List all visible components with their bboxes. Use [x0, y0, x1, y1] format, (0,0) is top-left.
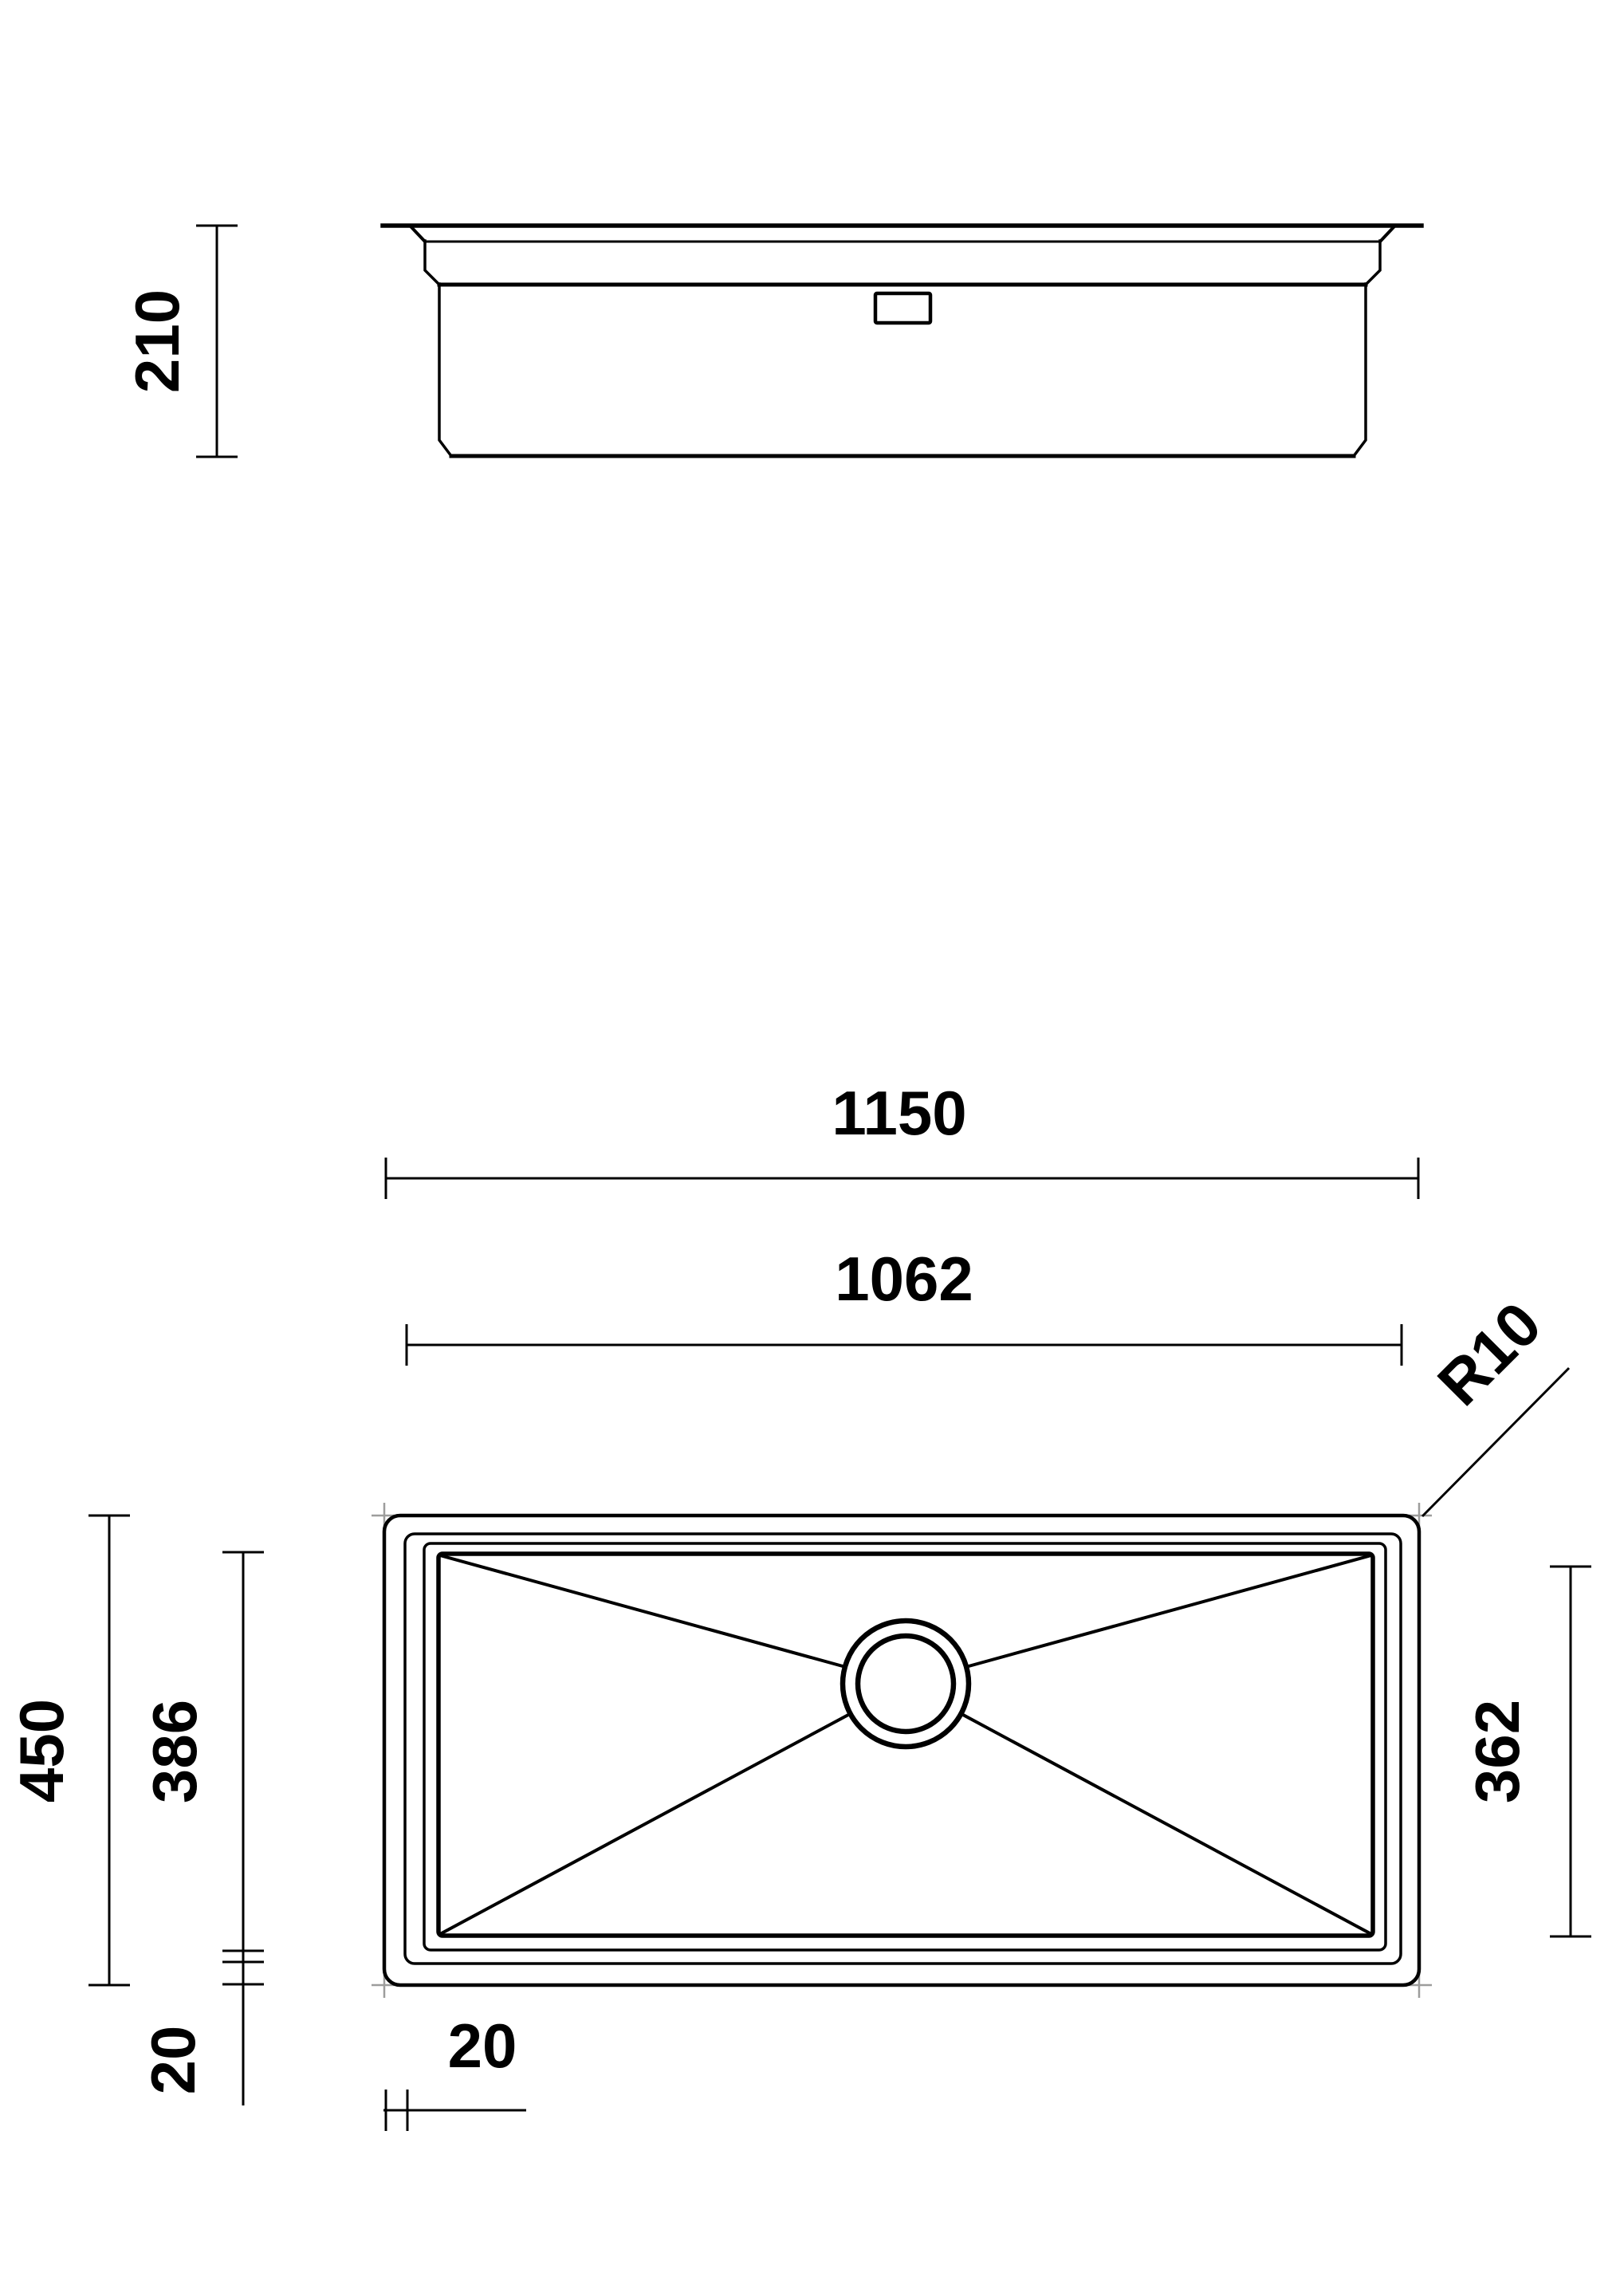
- side-bowl-walls: [439, 284, 1366, 456]
- drain-outer-circle: [843, 1621, 969, 1747]
- dim-210: 210: [122, 226, 238, 457]
- technical-drawing-canvas: 210 1150 1062: [0, 0, 1624, 2296]
- drain: [843, 1621, 969, 1747]
- dim-386-label: 386: [140, 1700, 210, 1803]
- dim-r10: R10: [1422, 1288, 1569, 1516]
- drain-inner-circle: [858, 1636, 954, 1732]
- dim-450-label: 450: [6, 1699, 77, 1803]
- overflow-slot: [875, 293, 930, 323]
- dim-1062: 1062: [407, 1244, 1402, 1366]
- dim-450: 450: [6, 1516, 130, 1985]
- side-flange-sides: [425, 241, 1380, 285]
- side-flange-chamfers: [411, 227, 1394, 242]
- dim-20-left: 20: [138, 1962, 264, 2094]
- dim-20-bottom: 20: [383, 2011, 526, 2131]
- r10-label: R10: [1424, 1288, 1554, 1418]
- dim-386: 386: [140, 1552, 264, 2105]
- dim-1150-label: 1150: [832, 1078, 966, 1148]
- dim-210-label: 210: [122, 289, 192, 393]
- dim-362: 362: [1462, 1567, 1591, 1936]
- corner-marker-crosses: [372, 1503, 1432, 1998]
- sink-dimension-drawing: 210 1150 1062: [0, 0, 1624, 2296]
- dim-1150: 1150: [386, 1078, 1418, 1199]
- dim-362-label: 362: [1462, 1700, 1532, 1803]
- dim-20-left-label: 20: [138, 2026, 208, 2095]
- dim-20-bottom-label: 20: [448, 2011, 517, 2081]
- side-elevation-view: 210: [122, 226, 1421, 457]
- plan-view: 1150 1062 R10 450 386 20: [6, 1078, 1591, 2131]
- dim-1062-label: 1062: [835, 1244, 973, 1314]
